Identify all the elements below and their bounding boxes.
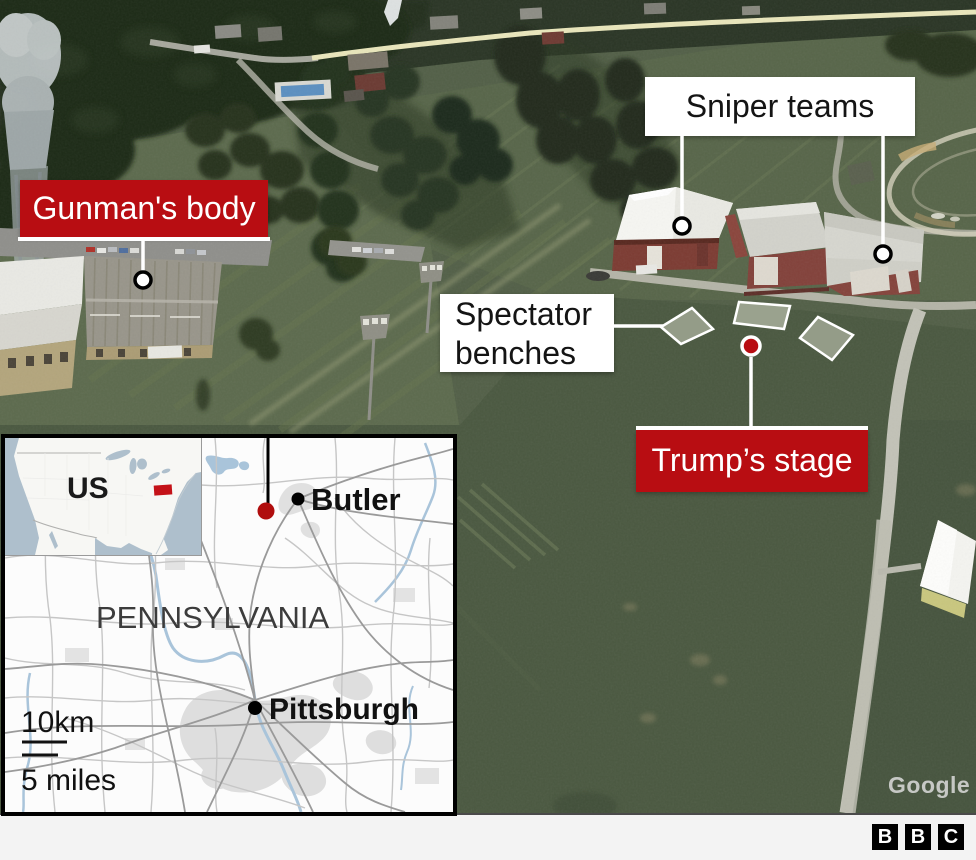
svg-text:Pittsburgh: Pittsburgh <box>269 693 419 726</box>
svg-text:Butler: Butler <box>311 482 401 517</box>
svg-text:5 miles: 5 miles <box>21 764 116 797</box>
svg-text:10km: 10km <box>21 706 94 739</box>
svg-text:PENNSYLVANIA: PENNSYLVANIA <box>96 600 329 635</box>
svg-text:US: US <box>67 472 109 505</box>
